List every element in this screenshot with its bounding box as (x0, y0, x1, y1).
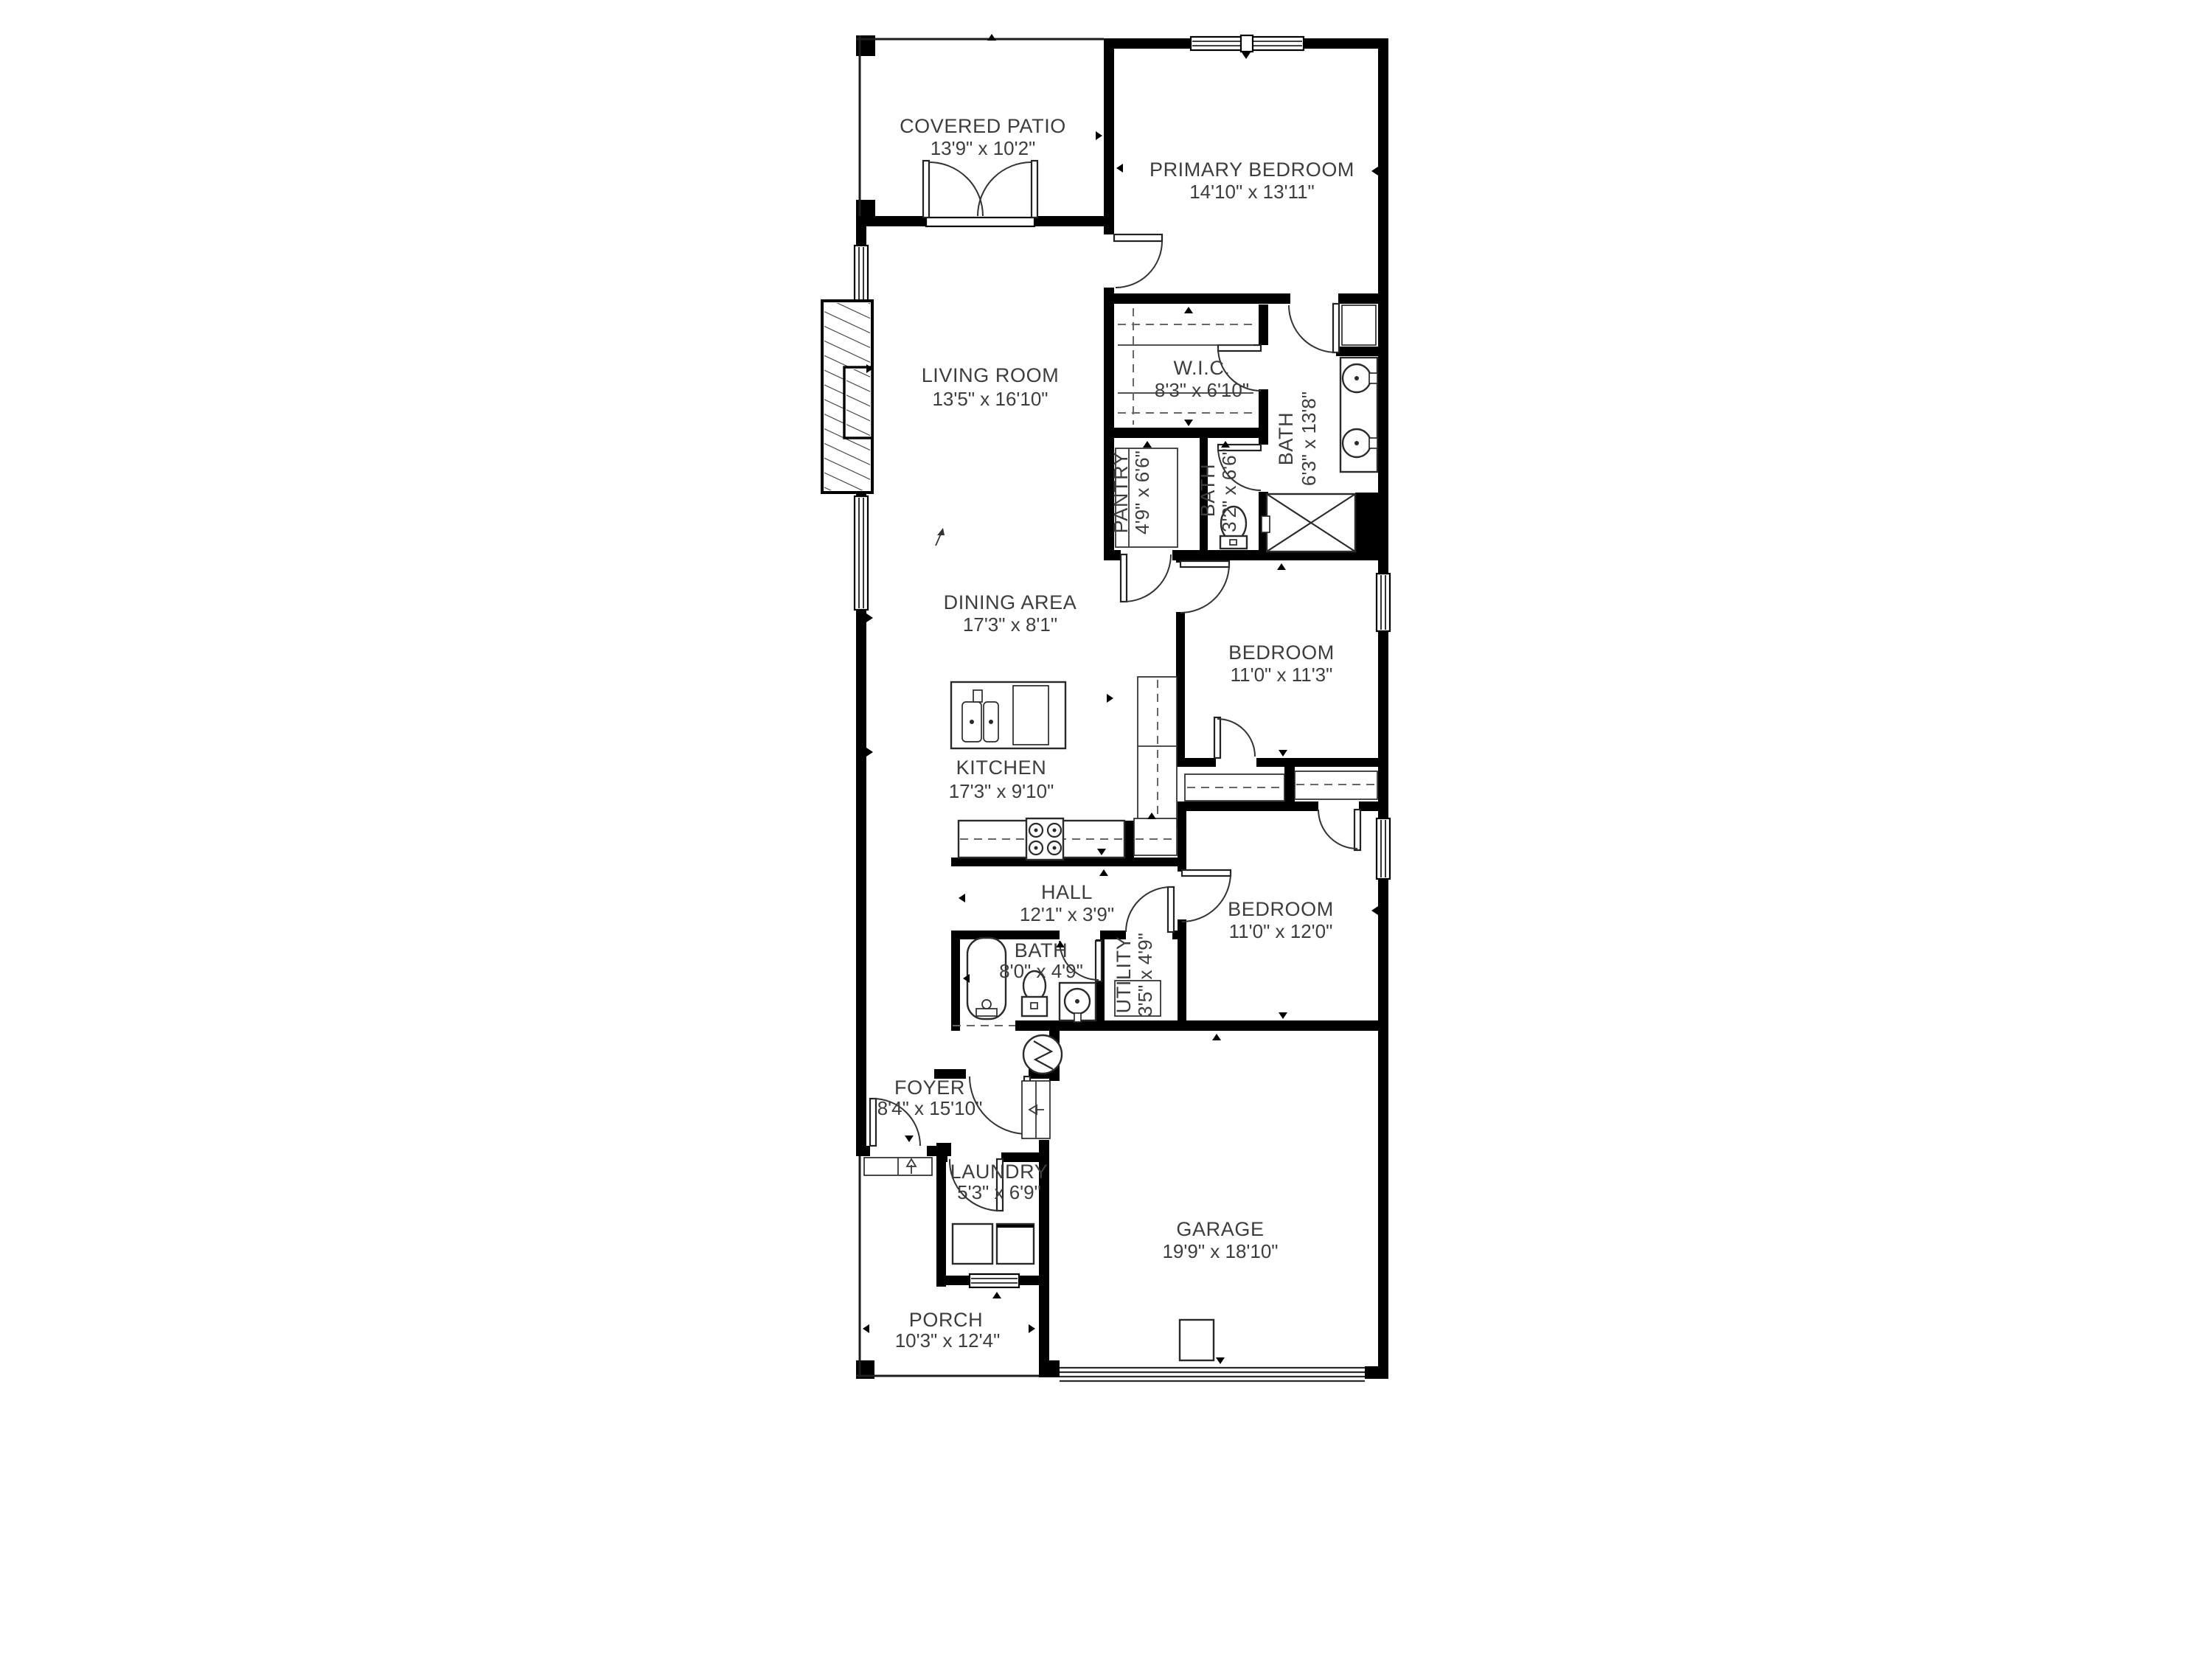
water-heater-icon (1023, 1035, 1062, 1074)
washer-icon (953, 1224, 992, 1264)
bedroom2-closet-icon (1295, 771, 1377, 799)
garage-dims: 19'9" x 18'10" (1162, 1240, 1278, 1262)
kitchen-label: KITCHEN (956, 757, 1047, 779)
toilet-room-dims: 3'2" x 6'6" (1218, 448, 1240, 532)
bedroom2-dims: 11'0" x 12'0" (1229, 920, 1333, 942)
door-bedroom1-icon (1180, 561, 1229, 613)
kitchen-tall-cabinets-icon (1138, 677, 1177, 827)
dining-area-label: DINING AREA (944, 591, 1077, 613)
covered-patio-label: COVERED PATIO (900, 115, 1066, 137)
linen-shelf-icon (1342, 305, 1376, 345)
foyer-label: FOYER (894, 1077, 965, 1099)
wic-dims: 8'3" x 6'10" (1155, 379, 1249, 401)
laundry-label: LAUNDRY (950, 1161, 1048, 1183)
bedroom1-label: BEDROOM (1228, 641, 1335, 664)
window-living-left-icon (855, 246, 868, 301)
utility-label: UTILITY (1113, 936, 1135, 1014)
door-bedroom2-closet-icon (1318, 810, 1360, 850)
kitchen-island-icon (951, 682, 1065, 748)
bedroom2-label: BEDROOM (1228, 898, 1334, 920)
french-door-patio-icon (923, 161, 1037, 226)
window-bedroom2-icon (1377, 818, 1390, 879)
garage-label: GARAGE (1176, 1218, 1264, 1240)
toilet-room-label: BATH (1197, 464, 1219, 517)
front-steps-icon (864, 1158, 932, 1175)
shower-icon (1262, 494, 1355, 552)
dining-area-dims: 17'3" x 8'1" (963, 613, 1057, 636)
doors (870, 161, 1360, 1211)
primary-bedroom-label: PRIMARY BEDROOM (1150, 159, 1354, 181)
garage-step-icon (1022, 1081, 1050, 1138)
utility-dims: 3'5" x 4'9" (1134, 933, 1156, 1017)
primary-vanity-icon (1340, 358, 1377, 472)
garage-door-icon (1060, 1364, 1365, 1383)
floor-plan-drawing: COVERED PATIO 13'9" x 10'2" PRIMARY BEDR… (0, 0, 2212, 1659)
door-bedroom2-icon (1182, 870, 1231, 922)
hall-label: HALL (1041, 881, 1093, 903)
living-room-dims: 13'5" x 16'10" (932, 388, 1048, 410)
porch-label: PORCH (909, 1309, 984, 1331)
foyer-dims: 8'4" x 15'10" (877, 1097, 983, 1119)
window-laundry-icon (970, 1274, 1019, 1287)
north-arrow-icon (936, 528, 945, 546)
primary-bath-dims: 6'3" x 13'8" (1298, 392, 1320, 486)
laundry-dims: 5'3" x 6'9" (957, 1181, 1041, 1203)
hall-dims: 12'1" x 3'9" (1020, 903, 1114, 925)
primary-bedroom-dims: 14'10" x 13'11" (1189, 181, 1315, 203)
window-dining-left-icon (855, 496, 868, 610)
door-utility-icon (1126, 887, 1174, 932)
door-pantry-icon (1121, 554, 1171, 602)
covered-patio-dims: 13'9" x 10'2" (931, 137, 1036, 159)
floor-plan-page: COVERED PATIO 13'9" x 10'2" PRIMARY BEDR… (0, 0, 2212, 1659)
wic-label: W.I.C. (1173, 357, 1230, 379)
door-primary-bath-icon (1289, 304, 1339, 352)
door-bedroom1-closet-icon (1214, 717, 1255, 758)
kitchen-dims: 17'3" x 9'10" (949, 780, 1054, 802)
fireplace-icon (822, 301, 872, 493)
porch-dims: 10'3" x 12'4" (895, 1329, 1001, 1352)
dryer-icon (997, 1224, 1034, 1264)
hall-bath-label: BATH (1015, 939, 1068, 961)
hall-bath-dims: 8'0" x 4'9" (999, 960, 1083, 982)
garage-platform-icon (1180, 1320, 1214, 1360)
primary-bath-label: BATH (1275, 412, 1297, 465)
door-primary-bedroom-icon (1114, 234, 1162, 288)
pantry-label: PANTRY (1110, 452, 1132, 534)
pantry-dims: 4'9" x 6'6" (1131, 451, 1153, 535)
living-room-label: LIVING ROOM (922, 364, 1060, 386)
hall-bath-vanity-icon (1060, 983, 1096, 1022)
kitchen-counter-icon (959, 818, 1177, 860)
window-primary-top-icon (1191, 35, 1304, 52)
bedroom1-dims: 11'0" x 11'3" (1231, 664, 1333, 686)
window-bedroom1-icon (1377, 574, 1390, 631)
bedroom1-closet-icon (1185, 774, 1284, 801)
